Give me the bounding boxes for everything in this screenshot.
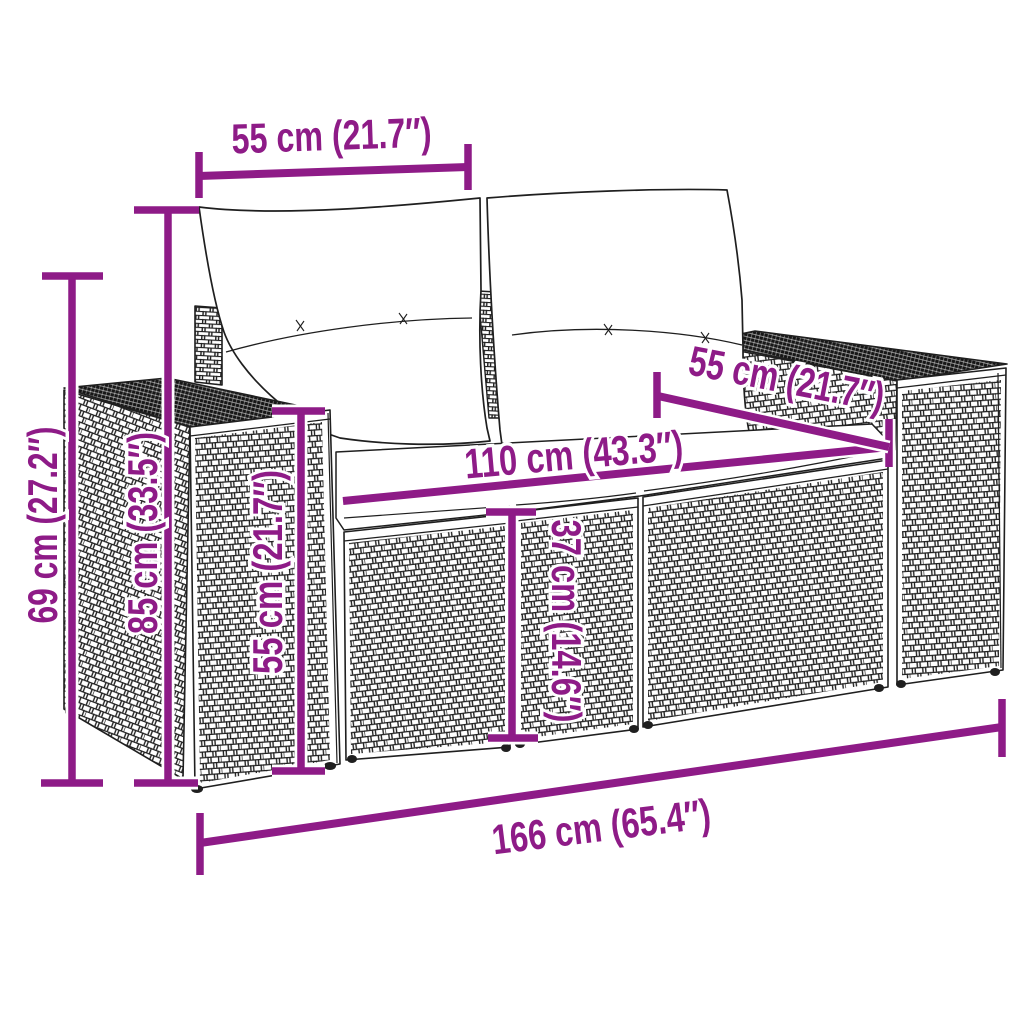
svg-text:85 cm (33.5″): 85 cm (33.5″) xyxy=(119,432,166,634)
svg-text:55 cm (21.7″): 55 cm (21.7″) xyxy=(231,109,433,163)
svg-text:69 cm (27.2″): 69 cm (27.2″) xyxy=(19,427,66,624)
svg-text:37 cm (14.6″): 37 cm (14.6″) xyxy=(543,520,590,723)
svg-text:55 cm (21.7″): 55 cm (21.7″) xyxy=(244,470,291,674)
